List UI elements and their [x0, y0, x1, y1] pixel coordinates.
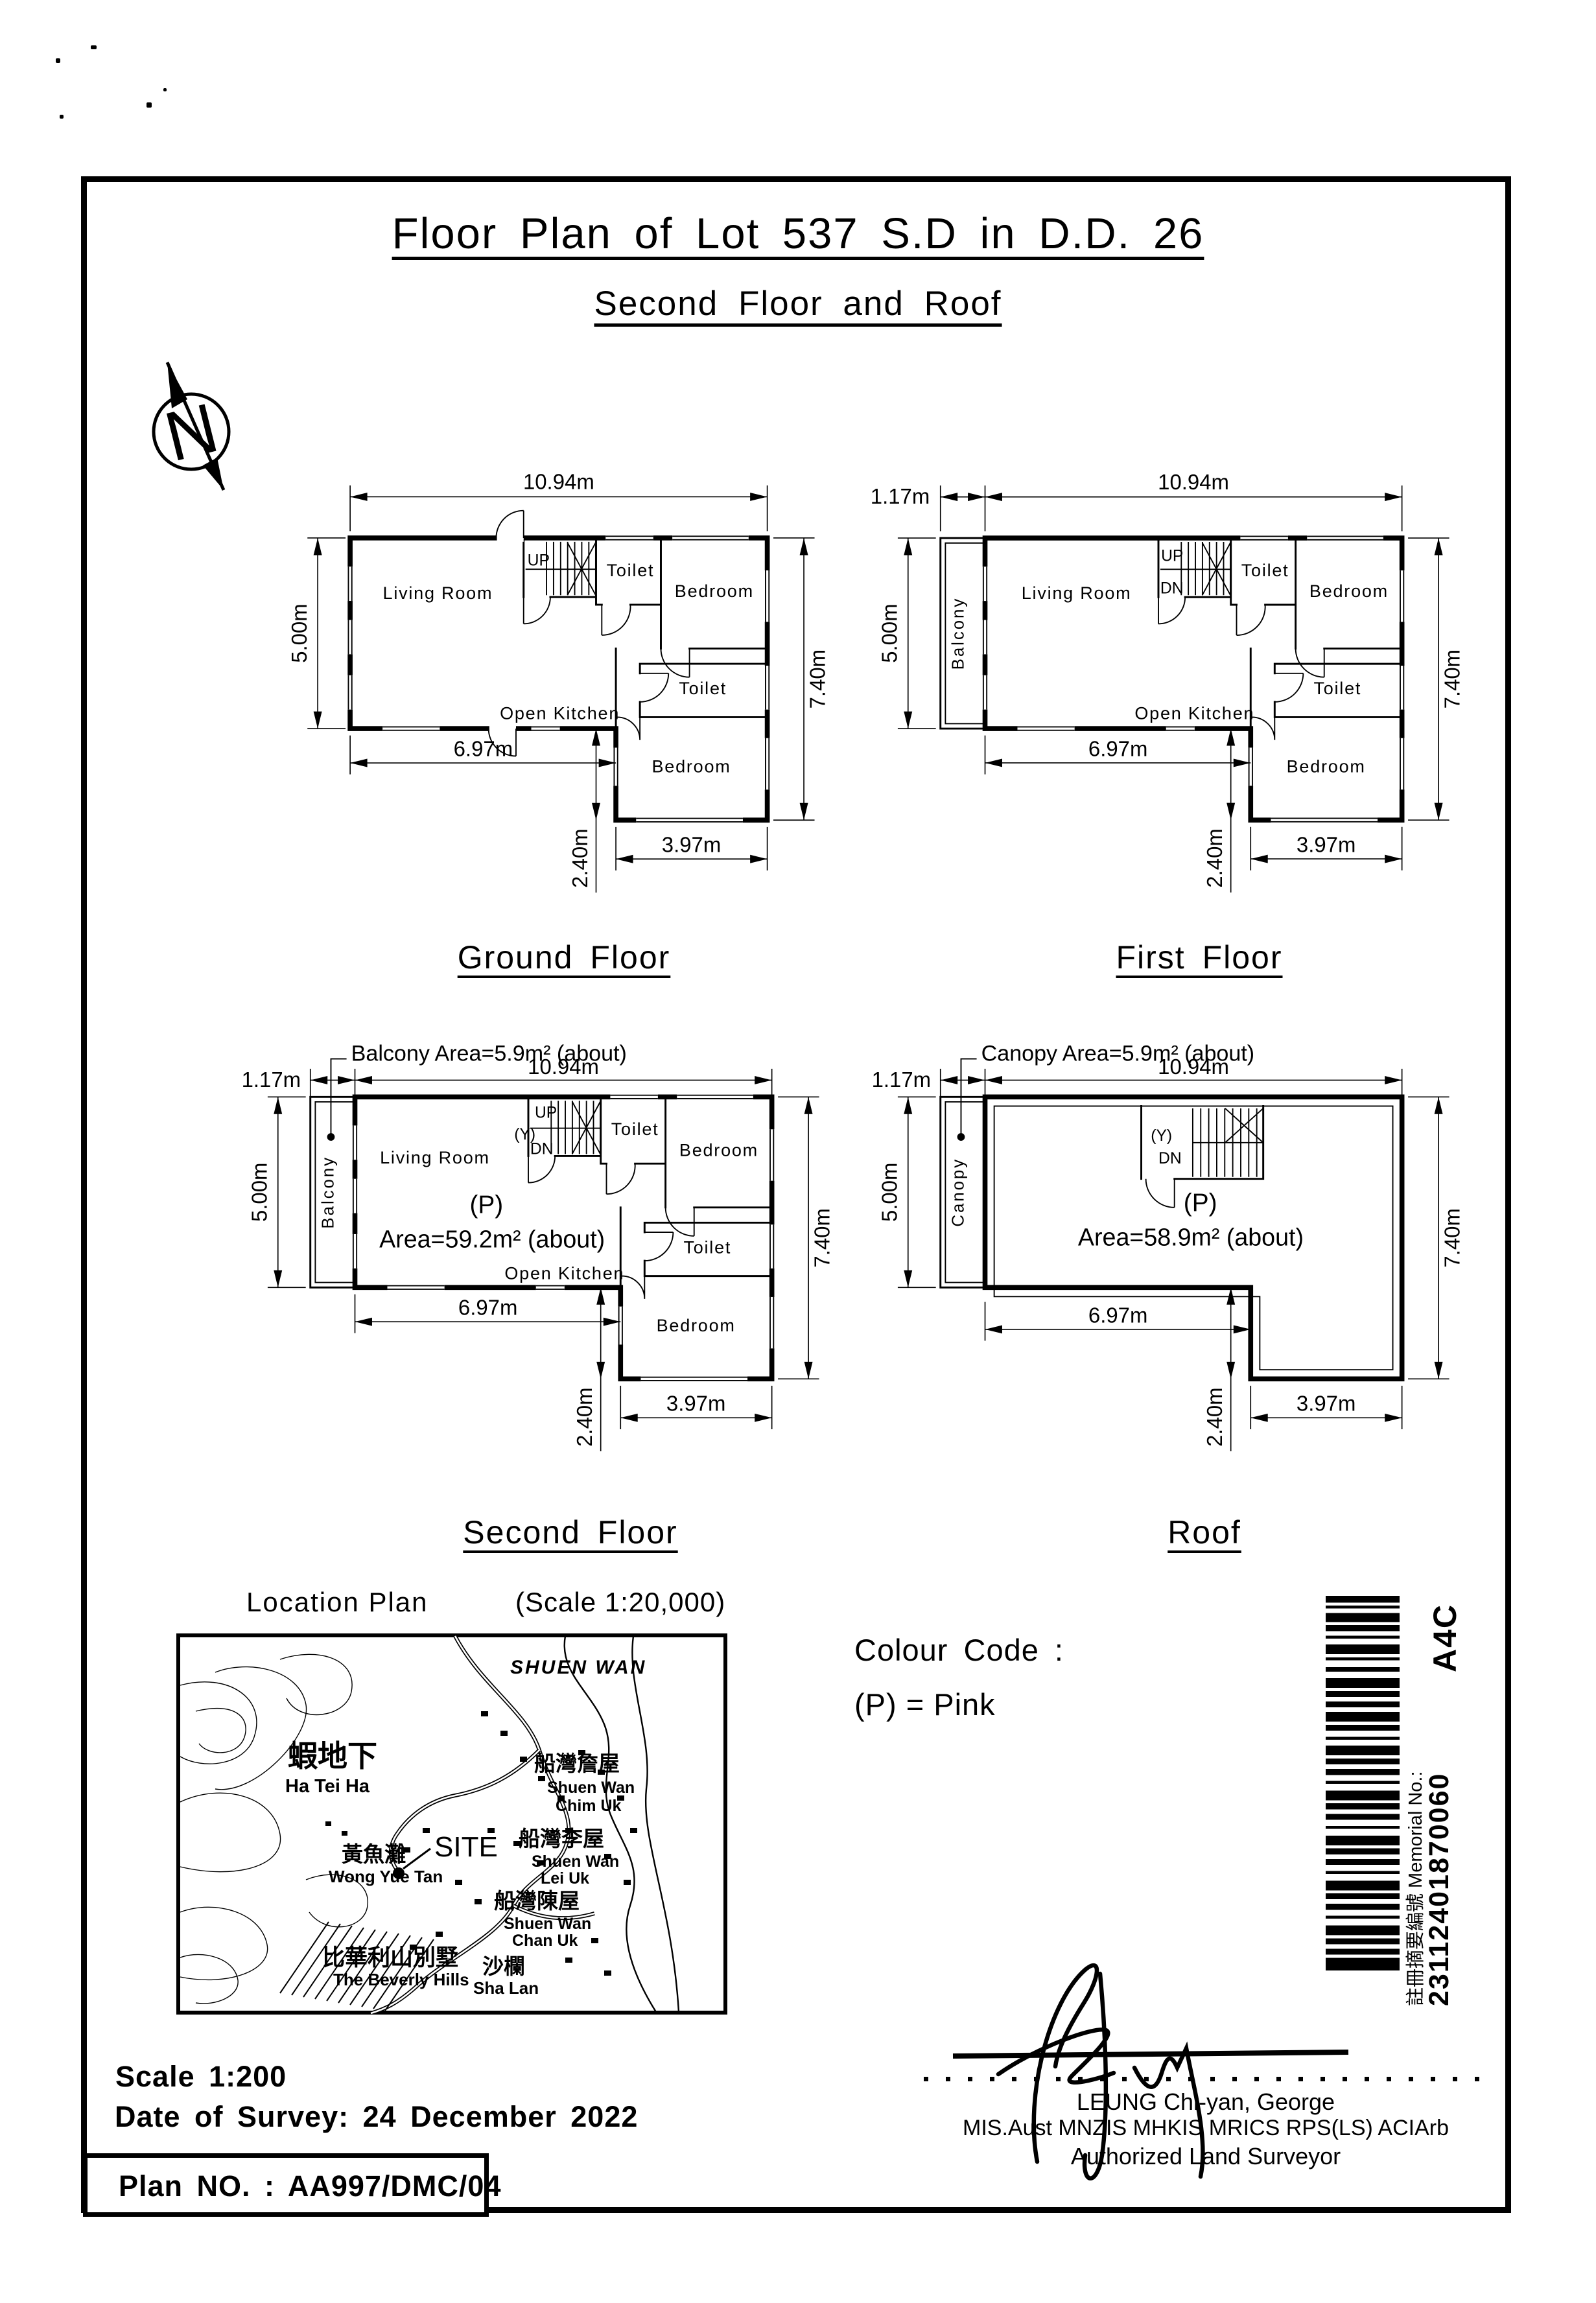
room-label-toilet: Toilet [679, 679, 727, 698]
map-label-shuen-wan: SHUEN WAN [510, 1657, 646, 1678]
plan-title-second: Second Floor [463, 1514, 677, 1551]
room-label-toilet: Toilet [607, 561, 655, 580]
north-arrow: N [139, 337, 276, 512]
stair-label-dn: DN [530, 1141, 554, 1158]
surveyor-role: Authorized Land Surveyor [1071, 2143, 1341, 2170]
stair-label-dn: DN [1160, 579, 1184, 597]
dim-label: 3.97m [1297, 833, 1355, 857]
floor-plan-document: Floor Plan of Lot 537 S.D in D.D. 26 Sec… [0, 0, 1596, 2303]
scan-speck [163, 88, 167, 91]
room-label-balcony: Balcony [950, 597, 968, 670]
room-label-bedroom: Bedroom [1309, 581, 1389, 601]
map-label-chan-uk-1: Shuen Wan [504, 1915, 591, 1933]
dim-label: 1.17m [872, 1068, 931, 1092]
room-label-toilet: Toilet [1241, 561, 1289, 580]
map-label-chim-uk-1: Shuen Wan [547, 1779, 635, 1797]
dim-label: 7.40m [1440, 1208, 1464, 1267]
room-label-living: Living Room [1022, 583, 1132, 603]
page-title: Floor Plan of Lot 537 S.D in D.D. 26 [392, 209, 1204, 259]
dim-label: 10.94m [528, 1055, 599, 1079]
second-floor-plan: Balcony Area=5.9m² (about) 10.94m 1.17m … [214, 975, 843, 1459]
location-plan-title: Location Plan [246, 1587, 428, 1618]
stair-label-up: UP [528, 552, 550, 569]
room-label-kitchen: Open Kitchen [504, 1263, 624, 1283]
map-label-wong-yue-tan-zh: 黃魚灘 [342, 1842, 406, 1866]
room-label-living: Living Room [383, 583, 493, 603]
scan-speck [56, 58, 60, 63]
stair-label-up: UP [535, 1105, 557, 1122]
area-label: Area=58.9m² (about) [1078, 1224, 1304, 1251]
dim-label: 10.94m [1158, 1055, 1229, 1079]
dim-label: 7.40m [1440, 649, 1464, 708]
plan-number: Plan NO. : AA997/DMC/04 [119, 2169, 501, 2203]
dim-label: 6.97m [458, 1296, 517, 1320]
room-label-bedroom: Bedroom [675, 581, 754, 601]
map-label-beverly: The Beverly Hills [333, 1970, 469, 1989]
room-label-canopy: Canopy [950, 1158, 968, 1227]
dim-label: 2.40m [1203, 1387, 1226, 1446]
map-label-ha-tei-ha-zh: 蝦地下 [288, 1739, 377, 1773]
colour-mark: (P) [1184, 1189, 1217, 1217]
dim-label: 5.00m [878, 1163, 902, 1222]
dim-label: 6.97m [1088, 736, 1147, 760]
stair-label-up: UP [1161, 547, 1183, 565]
room-label-bedroom: Bedroom [657, 1316, 736, 1335]
scan-speck [147, 102, 152, 108]
memorial-number: 23112401870060 [1424, 1773, 1455, 2006]
map-label-sha-lan: Sha Lan [473, 1978, 539, 1998]
signature-dotted-line [924, 2077, 1489, 2081]
surveyor-qualifications: MIS.Aust MNZIS MHKIS MRICS RPS(LS) ACIAr… [963, 2116, 1449, 2141]
dim-label: 1.17m [871, 484, 930, 508]
map-label-lei-uk-zh: 船灣李屋 [519, 1827, 604, 1851]
dim-label: 6.97m [454, 736, 513, 760]
map-label-beverly-zh: 比華利山別墅 [322, 1945, 458, 1970]
dim-label: 7.40m [810, 1208, 834, 1267]
plan-title-roof: Roof [1168, 1514, 1241, 1551]
room-label-toilet: Toilet [611, 1119, 659, 1139]
dim-label: 10.94m [523, 470, 594, 494]
roof-plan: Canopy Area=5.9m² (about) 10.94m 1.17m 5… [844, 975, 1473, 1459]
dim-label: 3.97m [1297, 1392, 1355, 1416]
dim-label: 5.00m [248, 1163, 272, 1222]
scan-speck [60, 115, 64, 119]
dim-label: 3.97m [666, 1392, 725, 1416]
ground-floor-plan: 10.94m 5.00m 7.40m 6.97m 3.97m 2.40m Liv… [289, 469, 838, 896]
dim-label: 5.00m [878, 603, 902, 662]
colour-code-title: Colour Code : [854, 1632, 1064, 1668]
footer-scale: Scale 1:200 [115, 2060, 287, 2094]
room-label-balcony: Balcony [320, 1156, 338, 1229]
signature-strike [953, 2052, 1348, 2056]
dim-label: 7.40m [805, 649, 829, 709]
map-label-chim-uk-zh: 船灣詹屋 [534, 1751, 620, 1775]
area-label: Area=59.2m² (about) [379, 1226, 605, 1253]
location-map: SITE SHUEN WAN 蝦地下 Ha Tei Ha 黃魚灘 Wong Yu… [176, 1633, 727, 2015]
stair-label-y: (Y) [1151, 1127, 1172, 1145]
map-label-lei-uk-1: Shuen Wan [532, 1853, 619, 1871]
plan-title-ground: Ground Floor [458, 939, 671, 976]
dim-label: 3.97m [662, 833, 722, 857]
first-floor-plan: 10.94m 1.17m 5.00m 7.40m 6.97m 3.97m 2.4… [844, 469, 1473, 896]
room-label-bedroom: Bedroom [679, 1140, 758, 1160]
map-label-lei-uk-2: Lei Uk [541, 1869, 589, 1888]
dim-label: 1.17m [242, 1068, 301, 1092]
stair-label-dn: DN [1158, 1150, 1182, 1167]
plan-number-box: Plan NO. : AA997/DMC/04 [83, 2153, 489, 2217]
colour-mark: (P) [469, 1191, 503, 1219]
dim-label: 10.94m [1158, 470, 1229, 494]
plan-title-first: First Floor [1116, 939, 1283, 976]
map-label-chan-uk-zh: 船灣陳屋 [494, 1889, 580, 1913]
room-label-toilet: Toilet [683, 1237, 731, 1257]
scan-speck [91, 45, 97, 49]
dim-label: 2.40m [568, 828, 592, 888]
map-coastline [565, 1636, 656, 2012]
room-label-bedroom: Bedroom [651, 757, 731, 777]
map-label-sha-lan-zh: 沙欄 [482, 1954, 525, 1978]
room-label-bedroom: Bedroom [1287, 757, 1366, 777]
room-label-living: Living Room [380, 1148, 490, 1167]
location-plan-scale: (Scale 1:20,000) [515, 1587, 725, 1618]
room-label-kitchen: Open Kitchen [1134, 703, 1254, 723]
site-label: SITE [434, 1831, 498, 1863]
colour-code-entry: (P) = Pink [854, 1687, 996, 1722]
footer-survey-date: Date of Survey: 24 December 2022 [115, 2100, 638, 2134]
map-label-wong-yue-tan: Wong Yue Tan [329, 1867, 443, 1886]
surveyor-name: LEUNG Chi-yan, George [1077, 2088, 1335, 2116]
dim-label: 2.40m [572, 1387, 596, 1446]
map-label-ha-tei-ha: Ha Tei Ha [285, 1776, 370, 1797]
barcode-code: A4C [1426, 1604, 1464, 1672]
map-label-chan-uk-2: Chan Uk [512, 1932, 578, 1950]
room-label-kitchen: Open Kitchen [500, 703, 620, 723]
dim-label: 6.97m [1088, 1303, 1147, 1327]
dim-label: 5.00m [289, 603, 311, 663]
map-label-chim-uk-2: Chim Uk [556, 1797, 622, 1815]
room-label-toilet: Toilet [1313, 679, 1361, 698]
barcode [1326, 1596, 1400, 1970]
dim-label: 2.40m [1203, 828, 1226, 887]
page-subtitle: Second Floor and Roof [594, 284, 1002, 323]
